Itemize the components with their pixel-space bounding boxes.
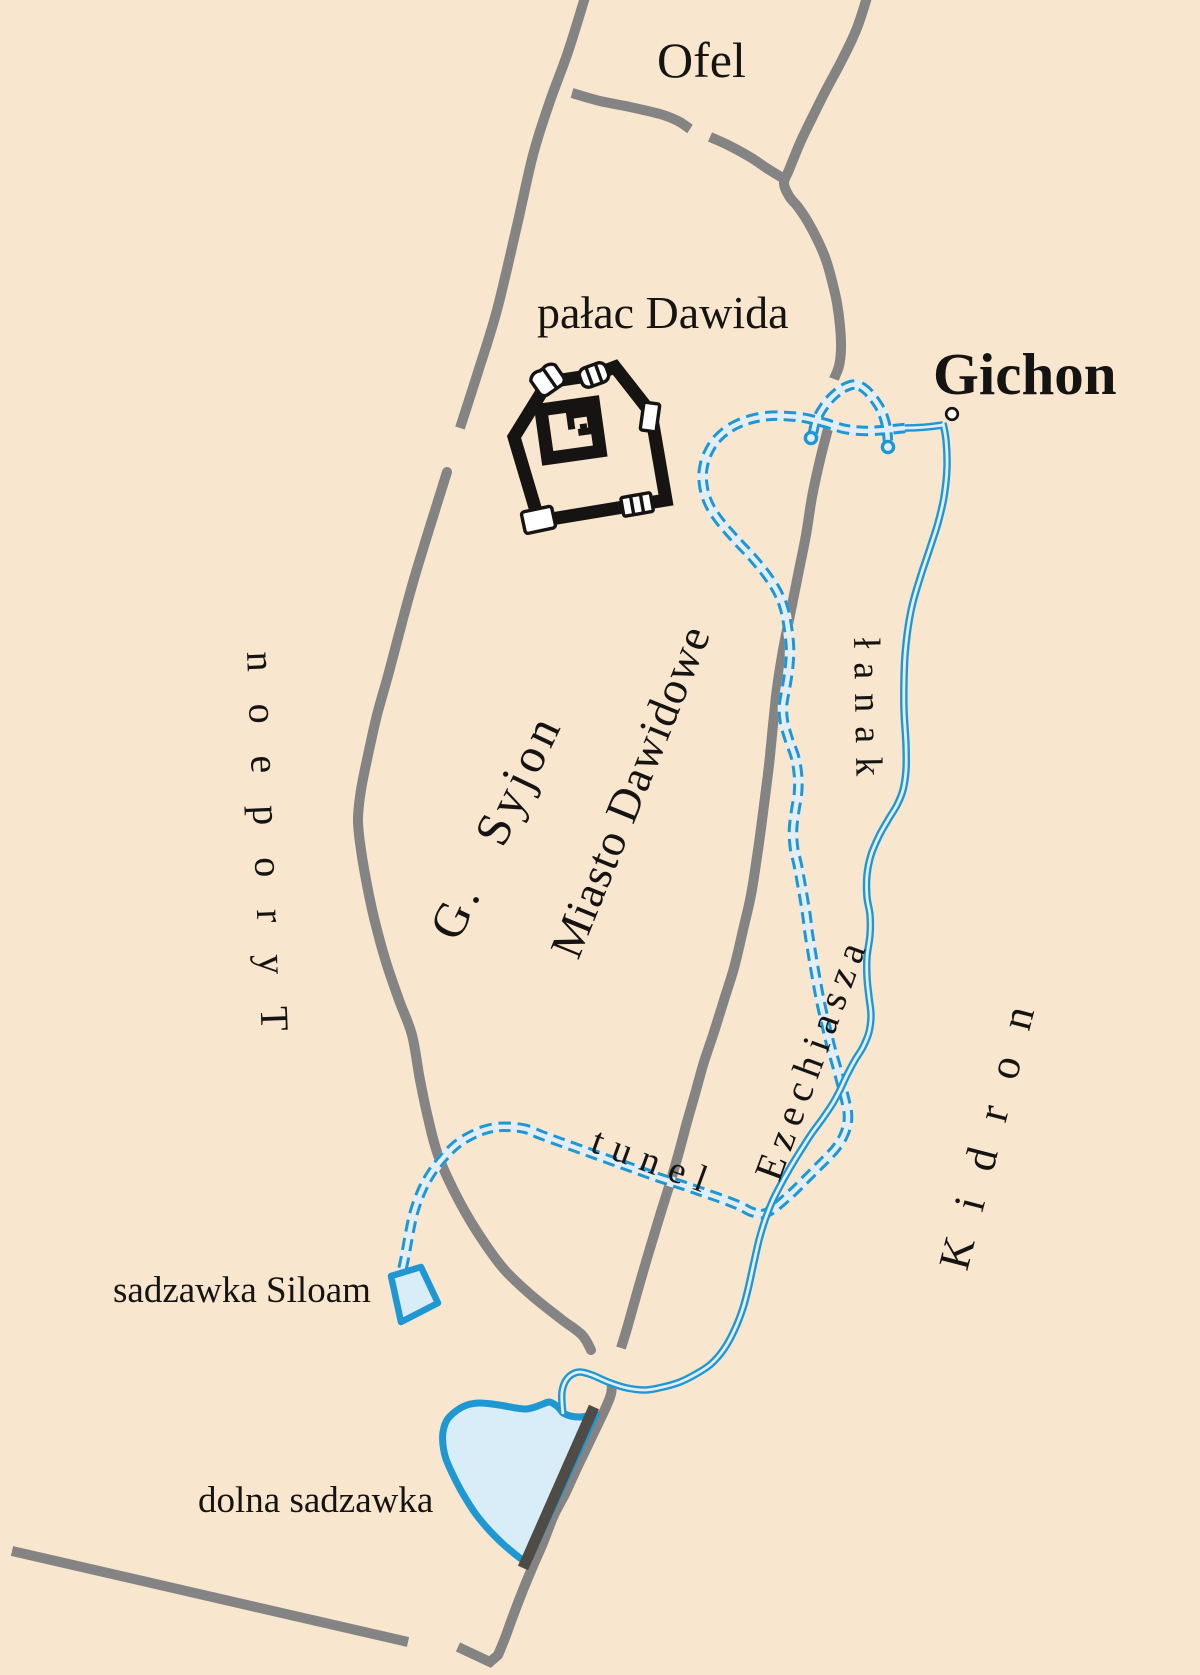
svg-text:pałac Dawida: pałac Dawida	[537, 287, 789, 338]
svg-text:sadzawka Siloam: sadzawka Siloam	[113, 1270, 371, 1311]
svg-text:Gichon: Gichon	[933, 341, 1117, 407]
svg-text:Ofel: Ofel	[657, 32, 746, 88]
svg-text:łanak: łanak	[845, 637, 890, 790]
svg-text:dolna sadzawka: dolna sadzawka	[198, 1480, 433, 1521]
